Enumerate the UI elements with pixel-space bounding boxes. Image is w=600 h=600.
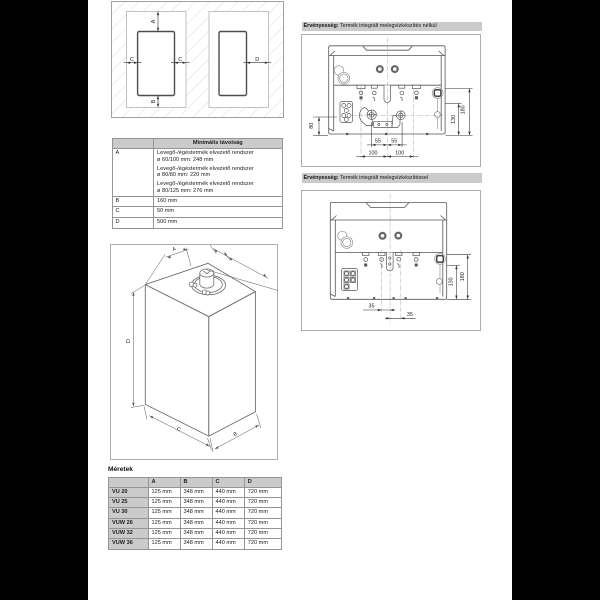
svg-text:A: A [151, 19, 157, 23]
svg-text:100: 100 [368, 150, 377, 156]
svg-text:130: 130 [448, 277, 454, 286]
svg-text:B: B [151, 99, 157, 103]
svg-text:55: 55 [375, 139, 381, 145]
svg-text:80: 80 [308, 123, 314, 129]
svg-text:180: 180 [460, 105, 466, 114]
svg-text:D: D [255, 57, 259, 63]
svg-text:130: 130 [450, 115, 456, 124]
svg-text:C: C [178, 57, 182, 63]
svg-text:C: C [130, 57, 134, 63]
svg-text:35: 35 [406, 312, 412, 318]
svg-text:100: 100 [395, 150, 404, 156]
svg-text:55: 55 [391, 139, 397, 145]
svg-text:35: 35 [368, 304, 374, 310]
svg-text:D: D [126, 339, 132, 343]
svg-text:180: 180 [459, 272, 465, 281]
